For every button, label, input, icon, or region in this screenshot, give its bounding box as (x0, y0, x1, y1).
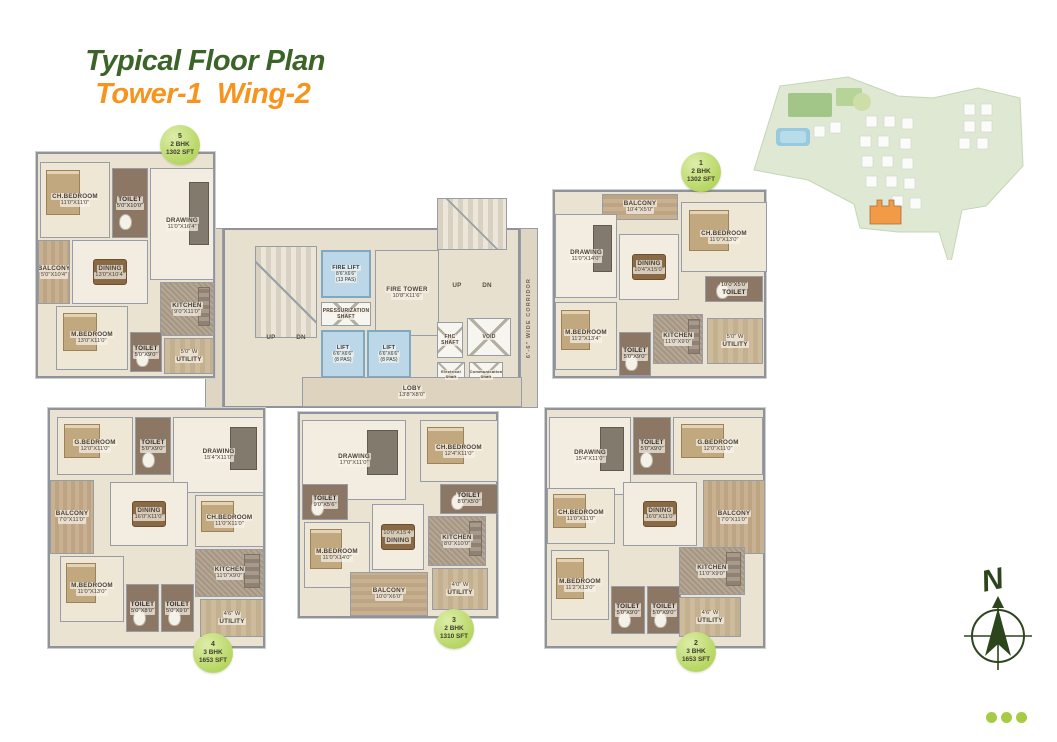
room-label: DRAWING (337, 453, 371, 461)
room-ch-bedroom: CH.BEDROOM11'0"X11'0" (547, 488, 615, 544)
room-toilet: TOILET5'0"X9'0" (611, 586, 645, 634)
room-g-bedroom: G.BEDROOM12'0"X11'0" (57, 417, 133, 475)
room-dims: 11'0"X14'0" (321, 555, 352, 562)
room-m-bedroom: M.BEDROOM11'0"X13'0" (60, 556, 124, 622)
page-title: Typical Floor Plan Tower-1 Wing-2 (55, 12, 325, 144)
room-label: M.BEDROOM (564, 329, 608, 337)
room-dims: 5'0"X9'0" (140, 446, 165, 453)
room-drawing: DRAWING11'0"X14'0" (555, 214, 617, 298)
room-dims: 10'4"X15'0" (633, 267, 665, 274)
room-dims: 13'0"X10'4" (94, 272, 126, 279)
unit-badge-5: 5 2 BHK 1302 SFT (160, 125, 200, 165)
room-dims: 5'0"X8'0" (130, 608, 155, 615)
room-extra: (8 PAS) (333, 357, 352, 363)
room-dims: 11'0"X9'0" (664, 339, 692, 346)
room-label: UTILITY (218, 618, 245, 626)
room-label: DRAWING (569, 249, 603, 257)
room-dims: 11'2"X13'0" (564, 585, 595, 592)
room-toilet: TOILET5'0"X9'0" (135, 417, 171, 475)
room-dims: 10'0"X5'0" (720, 282, 748, 289)
room-label: DINING (647, 507, 672, 515)
room-toilet: TOILET8'0"X5'0" (440, 484, 498, 514)
room-kitchen: KITCHEN11'0"X9'0" (679, 547, 745, 595)
room-utility: 4'6" WUTILITY (679, 597, 741, 637)
unit-2: DRAWING15'4"X11'0"TOILET5'0"X9'0"G.BEDRO… (545, 408, 765, 648)
room-dims: 13'8"X8'0" (398, 392, 426, 399)
room-label: TOILET (615, 603, 640, 611)
badge-number: 1 (699, 160, 703, 169)
room-label: DRAWING (202, 448, 236, 456)
room-label: M.BEDROOM (70, 582, 114, 590)
room-label: BALCONY (38, 265, 70, 273)
room-dims: 4'0" W (451, 582, 470, 589)
room-dining: 10'0"X15'4"DINING (372, 504, 424, 570)
room-ch-bedroom: CH.BEDROOM11'0"X11'0" (40, 162, 110, 238)
room-toilet: TOILET5'0"X8'0" (126, 584, 159, 632)
room-label: TOILET (165, 601, 190, 609)
room-label: CH.BEDROOM (206, 514, 254, 522)
room-drawing: DRAWING11'0"X16'4" (150, 168, 214, 280)
room-dims: 5'0" W (180, 349, 199, 356)
room-dims: 5'0"X9'0" (639, 446, 664, 453)
room-dims: 11'0"X9'0" (216, 573, 244, 580)
badge-number: 5 (178, 133, 182, 142)
room-toilet: TOILET5'0"X10'0" (112, 168, 148, 238)
room-label: KITCHEN (171, 302, 202, 310)
room-fire-lift: FIRE LIFT8'6"X6'6"(13 PAS) (321, 250, 371, 298)
room-label: KITCHEN (696, 564, 727, 572)
site-map (750, 60, 1050, 260)
room-fire-tower: FIRE TOWER10'8"X11'6" (375, 250, 439, 336)
room-label: DINING (136, 507, 161, 515)
room-dims: 5'0"X9'0" (133, 352, 158, 359)
room-loby: LOBY13'8"X8'0" (302, 377, 522, 407)
room-toilet: TOILET5'0"X9'0" (130, 332, 162, 372)
room-dims: 11'0"X13'0" (708, 237, 739, 244)
carousel-dot[interactable] (986, 712, 997, 723)
room-label: DRAWING (165, 217, 199, 225)
room-utility: 4'0" WUTILITY (432, 568, 488, 610)
room-dims: 11'2"X13'4" (570, 336, 601, 343)
carousel-dot[interactable] (1001, 712, 1012, 723)
room-label: DINING (97, 265, 122, 273)
compass-arrowhead (992, 596, 1004, 608)
room-dims: 5'0" W (726, 334, 745, 341)
room-dims: 5'0"X9'0" (651, 610, 676, 617)
room-label: G.BEDROOM (73, 439, 116, 447)
room-balcony: BALCONY10'0"X6'0" (350, 572, 428, 616)
room-label: TOILET (312, 495, 337, 503)
unit-4: G.BEDROOM12'0"X11'0"TOILET5'0"X9'0"DRAWI… (48, 408, 265, 648)
room-dining: DINING16'0"X11'0" (110, 482, 188, 546)
badge-area: 1653 SFT (682, 656, 710, 664)
badge-number: 2 (694, 640, 698, 649)
unit-1: BALCONY10'4"X5'0"CH.BEDROOM11'0"X13'0"DR… (553, 190, 766, 378)
room-dims: 10'0"X15'4" (382, 530, 414, 537)
room-label: KITCHEN (662, 332, 693, 340)
room-label: FIRE LIFT (331, 265, 360, 272)
room-label: DINING (385, 537, 410, 545)
room-dims: 8'0"X10'0" (443, 541, 471, 548)
room-dining: DINING10'4"X15'0" (619, 234, 679, 300)
room-label: KITCHEN (214, 566, 245, 574)
room-label: TOILET (117, 196, 142, 204)
badge-area: 1302 SFT (166, 149, 194, 157)
stairs (437, 198, 507, 250)
badge-number: 3 (452, 617, 456, 626)
core-area: FIRE TOWER10'8"X11'6"FIRE LIFT8'6"X6'6"(… (223, 228, 520, 408)
room-up: UP (261, 332, 281, 344)
room-dims: 13'0"X11'0" (76, 338, 107, 345)
unit-badge-4: 4 3 BHK 1653 SFT (193, 633, 233, 673)
room-dims: 16'0"X11'0" (644, 514, 675, 521)
room-m-bedroom: M.BEDROOM11'2"X13'0" (551, 550, 609, 620)
room-toilet: TOILET9'0"X5'6" (302, 484, 348, 520)
room-ch-bedroom: CH.BEDROOM11'0"X11'0" (195, 495, 264, 547)
room-label: UTILITY (175, 356, 202, 364)
room-extra: (13 PAS) (335, 277, 357, 283)
room-label: TOILET (133, 345, 158, 353)
unit-badge-3: 3 2 BHK 1310 SFT (434, 609, 474, 649)
pool-water (780, 131, 806, 143)
room-void: VOID (467, 318, 511, 356)
room-label: TOILET (651, 603, 676, 611)
room-lift: LIFT6'6"X6'6"(8 PAS) (367, 330, 411, 378)
room-drawing: DRAWING15'4"X11'0" (549, 417, 631, 495)
room-toilet: 10'0"X5'0"TOILET (705, 276, 763, 302)
room-label: M.BEDROOM (558, 578, 602, 586)
room-label: UP (451, 282, 462, 290)
badge-area: 1653 SFT (199, 657, 227, 665)
room-utility: 4'6" WUTILITY (200, 599, 264, 637)
room-dims: 12'4"X11'0" (443, 451, 474, 458)
badge-area: 1302 SFT (687, 176, 715, 184)
room-dims: 10'8"X11'6" (391, 293, 422, 300)
badge-number: 4 (211, 641, 215, 650)
room-up: UP (447, 280, 467, 292)
room-label: LIFT (382, 345, 396, 352)
room-dims: 11'0"X13'0" (76, 589, 107, 596)
room-dims: 12'0"X11'0" (702, 446, 733, 453)
room-dims: 8'0"X5'0" (456, 499, 481, 506)
room-dims: 10'0"X6'0" (375, 594, 403, 601)
room-pressurization: PRESSURIZATIONSHAFT (321, 302, 371, 326)
unit-badge-1: 1 2 BHK 1302 SFT (681, 152, 721, 192)
room-label: DINING (636, 260, 661, 268)
compass-icon: N (952, 556, 1044, 674)
room-label: BALCONY (55, 510, 90, 518)
room-dims: 17'0"X11'0" (338, 460, 369, 467)
room-label: UTILITY (446, 589, 473, 597)
badge-area: 1310 SFT (440, 633, 468, 641)
room-label: DRAWING (573, 449, 607, 457)
room-label: CH.BEDROOM (700, 230, 748, 238)
title-accent: Tower-1 Wing-2 (95, 78, 310, 110)
room-label: DN (481, 282, 493, 290)
room-dims: 4'6" W (701, 610, 720, 617)
room-label: CH.BEDROOM (557, 509, 605, 517)
room-balcony: BALCONY5'0"X10'4" (38, 240, 70, 304)
room-label: UP (265, 334, 276, 342)
room-dims: 11'0"X11'0" (566, 516, 597, 523)
room-dims: 4'6" W (223, 611, 242, 618)
room-label: CH.BEDROOM (51, 193, 99, 201)
compass-north-label: N (978, 562, 1007, 599)
badge-type: 2 BHK (170, 141, 189, 149)
room-balcony: BALCONY7'0"X11'0" (703, 480, 765, 554)
lawn (788, 93, 832, 117)
room-utility: 5'0" WUTILITY (164, 338, 214, 374)
room-dims: 11'0"X11'0" (60, 200, 91, 207)
room-dims: 5'0"X9'0" (622, 354, 647, 361)
room-dims: 5'0"X10'4" (40, 272, 68, 279)
room-dims: 7'0"X11'0" (58, 517, 86, 524)
room-utility: 5'0" WUTILITY (707, 318, 763, 364)
room-label: VOID (481, 334, 496, 340)
room-label: DN (295, 334, 307, 342)
room-dims: 15'4"X11'0" (203, 455, 234, 462)
room-ch-bedroom: CH.BEDROOM11'0"X13'0" (681, 202, 767, 272)
room-toilet: TOILET5'0"X9'0" (619, 332, 651, 376)
room-lift: LIFT6'6"X6'6"(8 PAS) (321, 330, 365, 378)
room-dims: 5'0"X9'0" (615, 610, 640, 617)
room-m-bedroom: M.BEDROOM11'2"X13'4" (555, 302, 617, 370)
room-label: LIFT (336, 345, 350, 352)
room-label: TOILET (721, 289, 746, 297)
room-dims: 12'0"X11'0" (79, 446, 110, 453)
room-toilet: TOILET5'0"X9'0" (633, 417, 671, 475)
room-dining: DINING13'0"X10'4" (72, 240, 148, 304)
room-dims: 16'0"X11'0" (133, 514, 164, 521)
stairs (255, 246, 317, 338)
carousel-dot[interactable] (1016, 712, 1027, 723)
unit-badge-2: 2 3 BHK 1653 SFT (676, 632, 716, 672)
title-main: Typical Floor Plan (85, 45, 325, 77)
room-kitchen: KITCHEN11'0"X9'0" (195, 549, 264, 597)
room-label: UTILITY (696, 617, 723, 625)
room-label: TOILET (456, 492, 481, 500)
room-dims: 15'4"X11'0" (574, 456, 605, 463)
room-dims: 9'0"X11'0" (173, 309, 201, 316)
room-label: BALCONY (717, 510, 752, 518)
carousel-dots (986, 712, 1027, 723)
badge-type: 3 BHK (686, 648, 705, 656)
room-dn: DN (291, 332, 311, 344)
room-label: TOILET (140, 439, 165, 447)
room-dims: 5'0"X10'0" (116, 203, 144, 210)
room-label: M.BEDROOM (70, 331, 114, 339)
room-dining: DINING16'0"X11'0" (623, 482, 697, 546)
playground (853, 93, 871, 111)
room-label: LOBY (402, 385, 422, 393)
badge-type: 2 BHK (691, 168, 710, 176)
room-label: CH.BEDROOM (435, 444, 483, 452)
room-label: G.BEDROOM (696, 439, 739, 447)
room-label: KITCHEN (441, 534, 472, 542)
room-label: BALCONY (372, 587, 407, 595)
room-label2: Shaft (445, 375, 458, 380)
room-toilet: TOILET5'0"X9'0" (647, 586, 681, 634)
room-label: M.BEDROOM (315, 548, 359, 556)
unit-3: DRAWING17'0"X11'0"CH.BEDROOM12'4"X11'0"T… (298, 412, 498, 618)
room-dims: 11'0"X9'0" (698, 571, 726, 578)
room-kitchen: KITCHEN9'0"X11'0" (160, 282, 214, 336)
room-dims: 9'0"X5'6" (312, 502, 337, 509)
room-balcony: BALCONY7'0"X11'0" (50, 480, 94, 554)
room-m-bedroom: M.BEDROOM13'0"X11'0" (56, 306, 128, 370)
badge-type: 2 BHK (444, 625, 463, 633)
room-label: TOILET (639, 439, 664, 447)
badge-type: 3 BHK (203, 649, 222, 657)
room-label: UTILITY (721, 341, 748, 349)
room-dn: DN (477, 280, 497, 292)
room-fhc: FHCSHAFT (437, 322, 463, 358)
room-kitchen: KITCHEN11'0"X9'0" (653, 314, 703, 364)
room-label: BALCONY (623, 200, 658, 208)
room-label: FIRE TOWER (385, 286, 428, 294)
corridor-right: 6'-6" WIDE CORRIDOR (520, 228, 538, 408)
room-dims: 11'0"X14'0" (570, 256, 601, 263)
room-dims: 11'0"X11'0" (214, 521, 245, 528)
room-label2: SHAFT (336, 314, 356, 320)
room-dims: 5'0"X9'0" (165, 608, 190, 615)
room-toilet: TOILET5'0"X9'0" (161, 584, 194, 632)
room-g-bedroom: G.BEDROOM12'0"X11'0" (673, 417, 763, 475)
room-dims: 11'0"X16'4" (166, 224, 197, 231)
floorplan-page: Typical Floor Plan Tower-1 Wing-2 (0, 0, 1057, 742)
room-label2: SHAFT (440, 340, 460, 346)
unit-5: CH.BEDROOM11'0"X11'0"TOILET5'0"X10'0"DRA… (36, 152, 215, 378)
room-dims: 10'4"X5'0" (626, 207, 654, 214)
room-label: TOILET (130, 601, 155, 609)
room-ch-bedroom: CH.BEDROOM12'4"X11'0" (420, 420, 498, 482)
room-dims: 7'0"X11'0" (720, 517, 748, 524)
corridor-label: 6'-6" WIDE CORRIDOR (526, 278, 532, 358)
room-label2: Shaft (480, 375, 493, 380)
room-kitchen: KITCHEN8'0"X10'0" (428, 516, 486, 566)
room-extra: (8 PAS) (379, 357, 398, 363)
room-label: TOILET (622, 347, 647, 355)
